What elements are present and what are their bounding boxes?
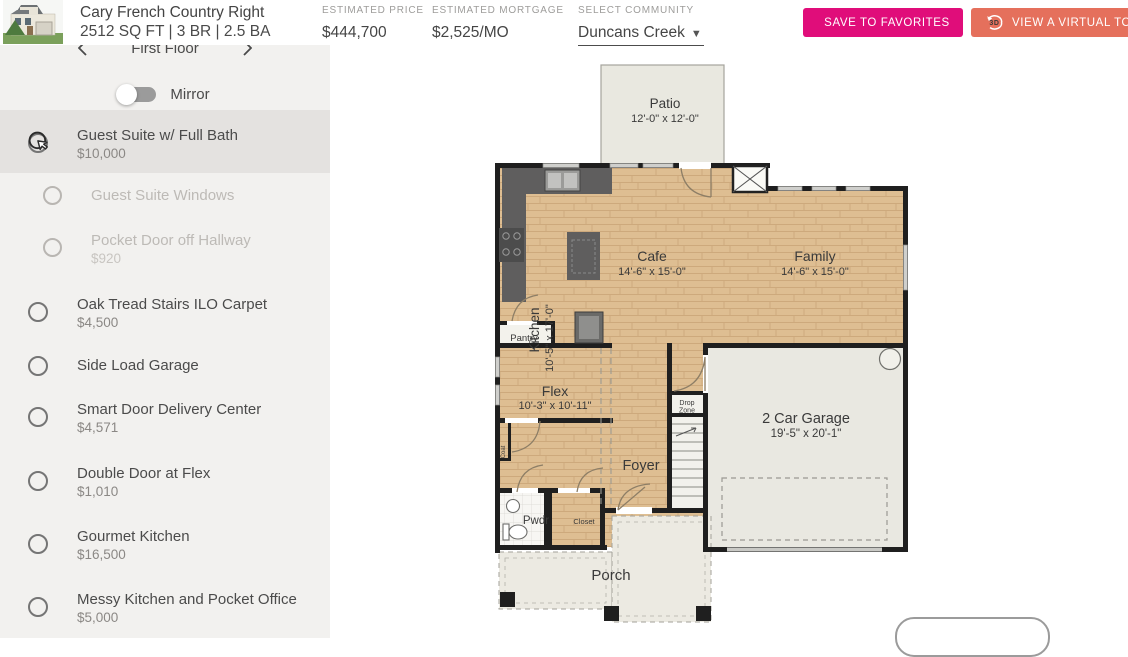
radio-icon[interactable] <box>28 534 48 554</box>
room-dims-kitchen: 10'-5" x 17'-0" <box>544 304 556 372</box>
plan-thumbnail[interactable] <box>3 0 63 44</box>
option-smart-door-delivery[interactable]: Smart Door Delivery Center$4,571 <box>0 400 330 437</box>
plan-title-block: Cary French Country Right 2512 SQ FT | 3… <box>80 3 270 42</box>
save-button-label: SAVE TO FAVORITES <box>824 17 950 29</box>
estimated-mortgage-group: ESTIMATED MORTGAGE $2,525/MO <box>432 5 564 42</box>
room-dims-flex: 10'-3" x 10'-11" <box>519 400 592 412</box>
mouse-cursor-icon <box>27 131 54 158</box>
option-label: Double Door at Flex <box>77 464 210 483</box>
chevron-down-icon: ▼ <box>691 28 702 40</box>
porch-column <box>604 606 619 621</box>
room-dims-family: 14'-6" x 15'-0" <box>781 266 849 278</box>
sink-basin <box>548 173 561 188</box>
option-price: $4,571 <box>77 419 261 437</box>
options-sidebar: First Floor Mirror Guest Suite w/ Full B… <box>0 45 330 638</box>
estimated-price-label: ESTIMATED PRICE <box>322 5 424 17</box>
option-gourmet-kitchen[interactable]: Gourmet Kitchen$16,500 <box>0 527 330 564</box>
floor-label: First Floor <box>131 45 199 57</box>
floor-carousel: First Floor <box>0 45 330 60</box>
plan-specs: 2512 SQ FT | 3 BR | 2.5 BA <box>80 22 270 42</box>
patio-area: Patio 12'-0" x 12'-0" <box>601 65 724 167</box>
prev-floor-arrow-icon[interactable] <box>78 45 87 56</box>
room-label-coat: Coat <box>501 445 507 458</box>
toilet-symbol <box>509 525 527 539</box>
option-double-door-flex[interactable]: Double Door at Flex$1,010 <box>0 464 330 501</box>
room-label-porch: Porch <box>591 567 630 584</box>
select-community-label: SELECT COMMUNITY <box>578 5 704 17</box>
estimated-mortgage-value: $2,525/MO <box>432 24 564 42</box>
water-heater-symbol <box>880 349 901 370</box>
room-label-drop: Drop <box>679 400 694 407</box>
floorplan-pane: Patio 12'-0" x 12'-0" Porch <box>330 45 1128 638</box>
stove-symbol <box>499 228 524 262</box>
header: Cary French Country Right 2512 SQ FT | 3… <box>0 0 1128 45</box>
radio-icon[interactable] <box>28 356 48 376</box>
room-label-zone: Zone <box>679 408 695 415</box>
room-dims-cafe: 14'-6" x 15'-0" <box>618 266 686 278</box>
virtual-tour-button[interactable]: 3D VIEW A VIRTUAL TOUR <box>971 8 1128 37</box>
room-label-family: Family <box>794 248 835 264</box>
option-messy-kitchen-pocket-office[interactable]: Messy Kitchen and Pocket Office$5,000 <box>0 590 330 627</box>
mirror-toggle-knob[interactable] <box>116 84 137 105</box>
radio-icon[interactable] <box>28 597 48 617</box>
community-dropdown[interactable]: Duncans Creek▼ <box>578 24 704 46</box>
estimated-price-value: $444,700 <box>322 24 424 42</box>
option-price: $16,500 <box>77 546 190 564</box>
radio-icon[interactable] <box>43 186 62 205</box>
radio-icon[interactable] <box>28 302 48 322</box>
plan-name: Cary French Country Right <box>80 3 270 22</box>
option-label: Gourmet Kitchen <box>77 527 190 546</box>
room-dims-garage: 19'-5" x 20'-1" <box>771 428 842 440</box>
fireplace-symbol <box>733 166 767 192</box>
room-label-foyer: Foyer <box>622 458 659 474</box>
option-pocket-door-hallway[interactable]: Pocket Door off Hallway$920 <box>0 231 330 268</box>
sink-basin <box>564 173 577 188</box>
option-guest-suite-windows[interactable]: Guest Suite Windows <box>0 186 330 205</box>
radio-icon[interactable] <box>43 238 62 257</box>
3d-tour-icon: 3D <box>985 14 1004 31</box>
option-label: Side Load Garage <box>77 356 199 375</box>
radio-icon[interactable] <box>28 471 48 491</box>
room-label-pwdr: Pwdr <box>523 515 549 527</box>
option-label: Smart Door Delivery Center <box>77 400 261 419</box>
tour-button-label: VIEW A VIRTUAL TOUR <box>1012 17 1128 29</box>
mirror-toggle[interactable] <box>120 87 156 102</box>
room-label-garage: 2 Car Garage <box>762 411 850 427</box>
option-oak-tread-stairs[interactable]: Oak Tread Stairs ILO Carpet$4,500 <box>0 295 330 332</box>
room-dims-patio: 12'-0" x 12'-0" <box>631 113 699 125</box>
room-label-cafe: Cafe <box>637 248 667 264</box>
option-price: $1,010 <box>77 483 210 501</box>
option-side-load-garage[interactable]: Side Load Garage <box>0 356 330 376</box>
porch-column <box>696 606 711 621</box>
mirror-label: Mirror <box>170 86 209 103</box>
option-label: Messy Kitchen and Pocket Office <box>77 590 297 609</box>
svg-text:3D: 3D <box>989 20 999 27</box>
sink-symbol <box>507 500 520 513</box>
community-value: Duncans Creek <box>578 24 685 41</box>
estimated-mortgage-label: ESTIMATED MORTGAGE <box>432 5 564 17</box>
option-label: Pocket Door off Hallway <box>91 231 251 250</box>
room-label-flex: Flex <box>542 383 568 399</box>
community-select-group: SELECT COMMUNITY Duncans Creek▼ <box>578 5 704 46</box>
radio-icon[interactable] <box>28 407 48 427</box>
next-floor-arrow-icon[interactable] <box>243 45 252 56</box>
mirror-row: Mirror <box>0 81 330 107</box>
save-to-favorites-button[interactable]: SAVE TO FAVORITES <box>803 8 963 37</box>
floorplan-image: Patio 12'-0" x 12'-0" Porch <box>330 45 1128 638</box>
toilet-tank <box>503 524 509 540</box>
option-price: $4,500 <box>77 314 267 332</box>
option-label: Oak Tread Stairs ILO Carpet <box>77 295 267 314</box>
porch-column <box>500 592 515 607</box>
option-label: Guest Suite w/ Full Bath <box>77 126 238 145</box>
chat-pill[interactable] <box>895 617 1050 657</box>
estimated-price-group: ESTIMATED PRICE $444,700 <box>322 5 424 42</box>
room-label-patio: Patio <box>650 96 681 111</box>
option-price: $5,000 <box>77 609 297 627</box>
option-label: Guest Suite Windows <box>91 186 234 205</box>
room-label-kitchen: Kitchen <box>527 307 542 352</box>
room-label-closet: Closet <box>573 517 595 526</box>
room-label-pantry: Pantry <box>510 333 538 344</box>
option-price: $920 <box>91 250 251 268</box>
option-price: $10,000 <box>77 145 238 163</box>
